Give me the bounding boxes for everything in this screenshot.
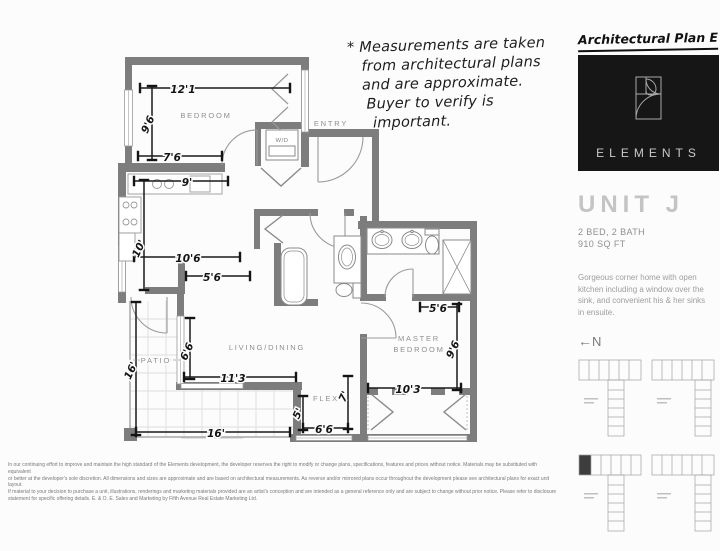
patio-label: PATIO (141, 356, 171, 365)
disclaimer-line: If material to your decision to purchase… (8, 489, 560, 496)
unit-specs: 2 BED, 2 BATH 910 SQ FT (578, 226, 719, 250)
key-plans (578, 356, 719, 537)
main-bath-fixtures (281, 236, 361, 305)
patio-border (130, 301, 294, 437)
brand-name: ELEMENTS (578, 146, 719, 160)
north-indicator: ←N (578, 333, 719, 349)
master-bedroom-label-line1: MASTER (398, 334, 440, 343)
washer-dryer (266, 130, 298, 160)
north-arrow-icon: ← (578, 333, 592, 349)
unit-spec-beds-baths: 2 BED, 2 BATH (578, 226, 719, 238)
highlighted-unit (579, 455, 591, 475)
sidebar: Architectural Plan E ELEMENTS UNIT J 2 B… (578, 30, 719, 537)
dim-master-top: 5'6 (429, 303, 447, 315)
closet-tracks (368, 396, 467, 432)
disclaimer-line: In our continuing effort to improve and … (8, 462, 560, 476)
patio-tiles (130, 301, 294, 437)
dim-flex-width: 6'6 (315, 424, 333, 436)
dim-kitchen-width2: 5'6 (203, 272, 221, 284)
dim-bedroom-height: 9'6 (139, 114, 157, 135)
key-plan-level-1 (578, 356, 644, 442)
unit-description: Gorgeous corner home with open kitchen i… (578, 272, 719, 318)
disclaimer-line: or better at the developer's sole discre… (8, 476, 560, 490)
scanned-floorplan-page: 12'1 9'6 7'6 9' 10' 10'6 5'6 6'6 11'3 16… (0, 0, 720, 551)
dim-master-height: 9'6 (444, 339, 462, 360)
key-plan-level-3-unit-highlighted (578, 451, 644, 537)
ensuite-fixtures (367, 228, 471, 294)
dim-master-width: 10'3 (395, 384, 420, 396)
dim-kitchen-width: 10'6 (175, 253, 200, 265)
master-bedroom-label-line2: BEDROOM (393, 345, 444, 354)
entry-label: ENTRY (314, 119, 348, 128)
description-line: in ensuite. (578, 307, 719, 319)
handwritten-note: * Measurements are taken from architectu… (347, 33, 589, 134)
dim-living-bottom: 16' (207, 428, 225, 440)
washer-dryer-label: W/D (276, 138, 289, 144)
dim-living-width: 11'3 (220, 373, 245, 385)
disclaimer-line: statement for specific offering details.… (8, 496, 560, 503)
bedroom-label: BEDROOM (180, 111, 231, 120)
unit-name: UNIT J (578, 191, 719, 219)
key-plan-level-4 (651, 451, 717, 537)
flex-label: FLEX (313, 394, 339, 403)
dim-patio-height: 16' (122, 360, 140, 381)
description-line: Gorgeous corner home with open (578, 272, 719, 284)
north-label: N (592, 334, 601, 349)
dim-kitchen-top: 9' (182, 177, 193, 189)
description-line: sink, and convenient his & her sinks (578, 295, 719, 307)
unit-spec-area: 910 SQ FT (578, 238, 719, 250)
living-dining-label: LIVING/DINING (229, 343, 305, 352)
architectural-plan-label: Architectural Plan E (578, 30, 718, 52)
elements-logo: ELEMENTS (578, 55, 719, 171)
dim-bedroom-width: 12'1 (170, 84, 195, 96)
key-plan-level-2 (651, 356, 717, 442)
dim-bedroom-bottom: 7'6 (163, 152, 181, 164)
legal-disclaimer: In our continuing effort to improve and … (8, 462, 560, 503)
description-line: kitchen including a window over the (578, 284, 719, 296)
